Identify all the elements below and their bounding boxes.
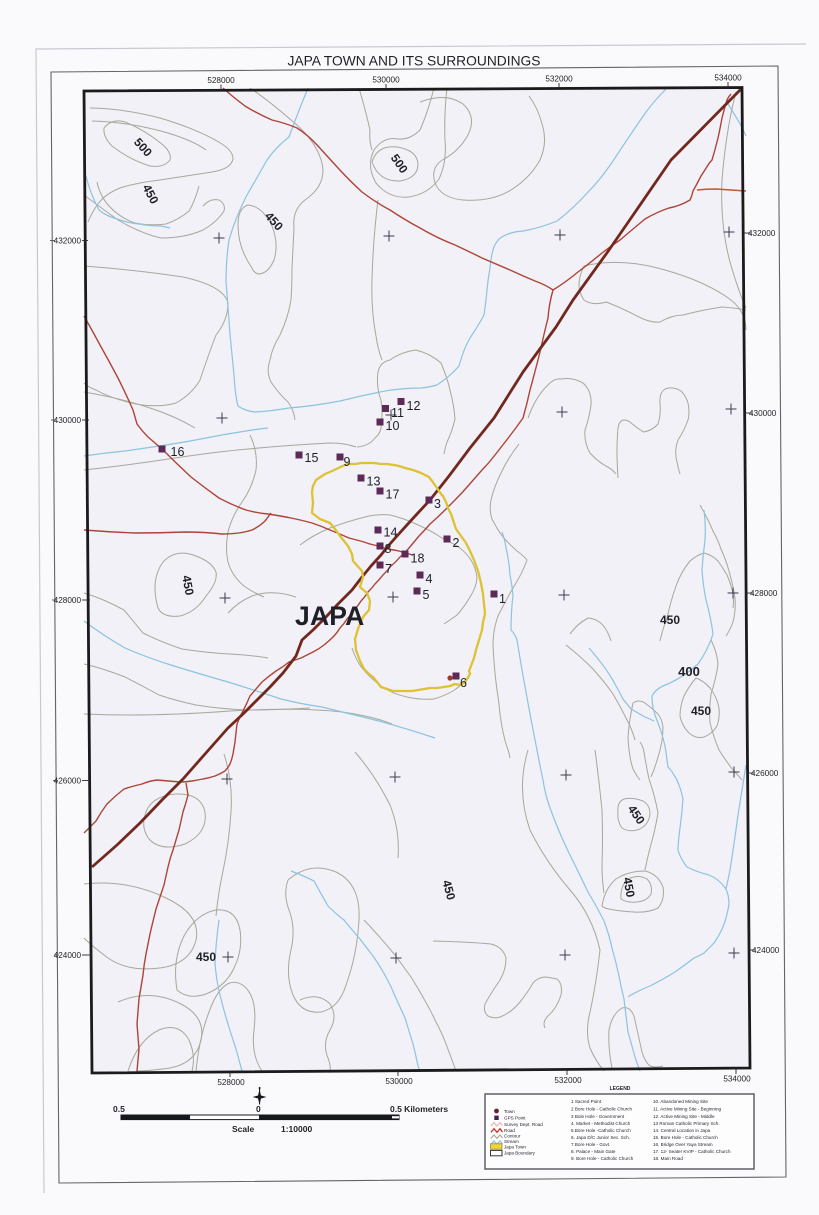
svg-text:2: 2 [453,536,460,550]
svg-text:4: 4 [426,572,433,586]
svg-text:Japa Town: Japa Town [504,1145,526,1150]
svg-text:1 Sacred Point: 1 Sacred Point [571,1099,602,1104]
svg-text:0: 0 [256,1104,261,1114]
svg-text:13: 13 [367,475,381,489]
svg-text:400: 400 [678,664,700,679]
svg-text:5: 5 [423,588,430,602]
svg-text:15: 15 [305,451,319,465]
svg-text:1:10000: 1:10000 [281,1124,312,1134]
svg-text:Scale: Scale [232,1124,254,1134]
svg-text:1: 1 [499,592,506,606]
svg-text:0.5 Kilometers: 0.5 Kilometers [390,1104,448,1114]
svg-text:450: 450 [196,950,216,964]
svg-text:16: 16 [171,445,185,459]
svg-text:6: 6 [460,676,467,690]
svg-text:3: 3 [434,497,441,511]
svg-text:5.Bore Hole -Catholic Church: 5.Bore Hole -Catholic Church [571,1128,631,1133]
svg-text:426000: 426000 [54,777,82,786]
svg-text:18: 18 [411,552,425,566]
svg-text:428000: 428000 [750,589,778,598]
svg-text:14. Central Location in Japa: 14. Central Location in Japa [653,1128,711,1133]
svg-text:Contour: Contour [504,1134,521,1139]
svg-text:4. Market - Methodist Church: 4. Market - Methodist Church [571,1121,631,1126]
svg-text:424000: 424000 [54,951,82,960]
svg-text:GPS Point: GPS Point [504,1116,526,1121]
svg-text:Japa Boundary: Japa Boundary [504,1151,536,1156]
svg-text:7: 7 [385,562,392,576]
svg-text:3 Bole Hole - Government: 3 Bole Hole - Government [571,1114,625,1119]
svg-text:530000: 530000 [385,1077,413,1086]
svg-text:16. Bridge Over Yaya Stream: 16. Bridge Over Yaya Stream [653,1142,713,1147]
svg-text:10. Abandoned Mining Site: 10. Abandoned Mining Site [653,1099,708,1104]
svg-text:12: 12 [407,399,421,413]
svg-text:424000: 424000 [752,946,780,955]
svg-text:426000: 426000 [751,769,779,778]
svg-text:528000: 528000 [207,76,235,85]
svg-text:15. Bore Hole - Catholic Churc: 15. Bore Hole - Catholic Church [653,1135,718,1140]
svg-text:528000: 528000 [217,1078,245,1087]
svg-text:450: 450 [660,613,680,627]
svg-text:430000: 430000 [749,409,777,418]
svg-text:9: 9 [344,455,351,469]
svg-text:0.5: 0.5 [113,1104,125,1114]
svg-text:Town: Town [504,1109,515,1114]
svg-text:432000: 432000 [54,237,82,246]
svg-text:18. Main Road: 18. Main Road [653,1156,683,1161]
svg-text:430000: 430000 [54,416,82,425]
svg-text:17: 17 [386,488,400,502]
svg-text:11: 11 [391,406,404,420]
svg-text:432000: 432000 [748,229,776,238]
svg-text:13 Roman Catholic Primary Sch.: 13 Roman Catholic Primary Sch. [653,1121,720,1126]
svg-text:7.Bore Hole - Govt.: 7.Bore Hole - Govt. [571,1142,610,1147]
svg-text:JAPA TOWN AND ITS SURROUNDINGS: JAPA TOWN AND ITS SURROUNDINGS [288,54,541,69]
svg-text:Stream: Stream [504,1139,519,1144]
svg-text:450: 450 [691,704,711,718]
svg-text:Survey Dept. Road: Survey Dept. Road [504,1122,543,1127]
svg-text:JAPA: JAPA [295,601,365,631]
svg-text:8: 8 [385,542,392,556]
svg-text:530000: 530000 [372,76,400,85]
svg-text:11. Active Mining Site - Begin: 11. Active Mining Site - Beginning [653,1107,722,1112]
svg-text:LEGEND: LEGEND [610,1086,631,1092]
svg-text:532000: 532000 [554,1076,582,1085]
svg-text:14: 14 [384,526,398,540]
svg-text:534000: 534000 [723,1075,751,1084]
svg-text:6. Japa D/C Junior Sec. Sch.: 6. Japa D/C Junior Sec. Sch. [571,1135,630,1140]
svg-text:10: 10 [386,419,400,433]
svg-text:428000: 428000 [54,596,82,605]
svg-text:17. 12- Seater KVIP - Catholic: 17. 12- Seater KVIP - Catholic Church [653,1149,731,1154]
svg-text:8. Palace - Main Gate: 8. Palace - Main Gate [571,1149,616,1154]
svg-text:534000: 534000 [714,74,742,83]
svg-text:Road: Road [504,1128,515,1133]
svg-text:2 Bore Hole - Catholic Church: 2 Bore Hole - Catholic Church [571,1107,632,1112]
svg-text:532000: 532000 [545,75,573,84]
svg-text:12. Active Mining Site - Middl: 12. Active Mining Site - Middle [653,1114,715,1119]
svg-text:9. Bore Hole - Catholic Church: 9. Bore Hole - Catholic Church [571,1156,634,1161]
